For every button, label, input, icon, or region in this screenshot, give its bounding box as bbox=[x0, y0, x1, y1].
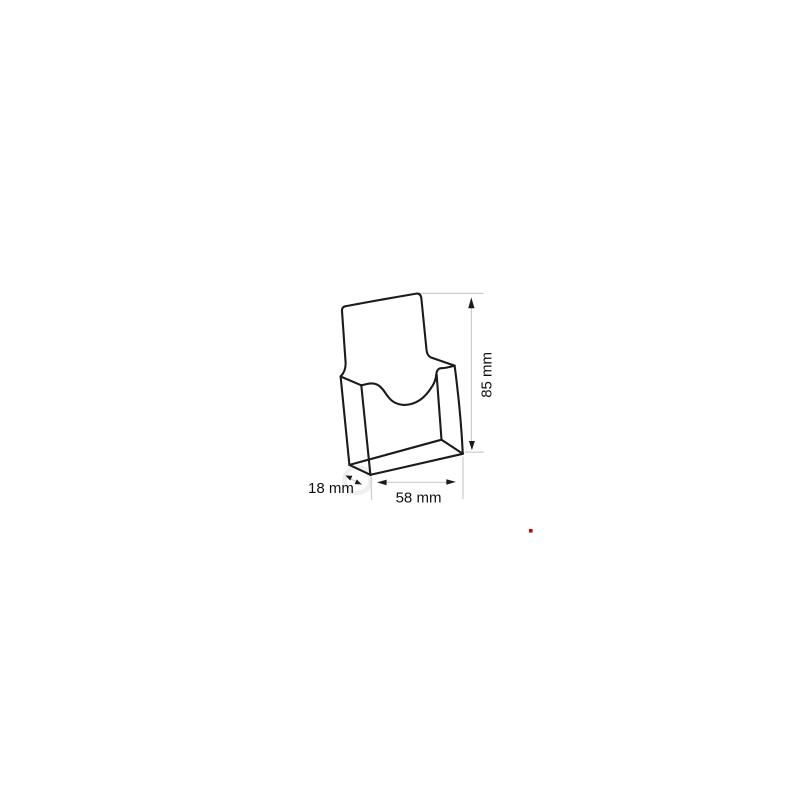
svg-text:18 mm: 18 mm bbox=[308, 480, 354, 497]
svg-text:85 mm: 85 mm bbox=[479, 352, 496, 398]
svg-text:58 mm: 58 mm bbox=[396, 490, 442, 507]
